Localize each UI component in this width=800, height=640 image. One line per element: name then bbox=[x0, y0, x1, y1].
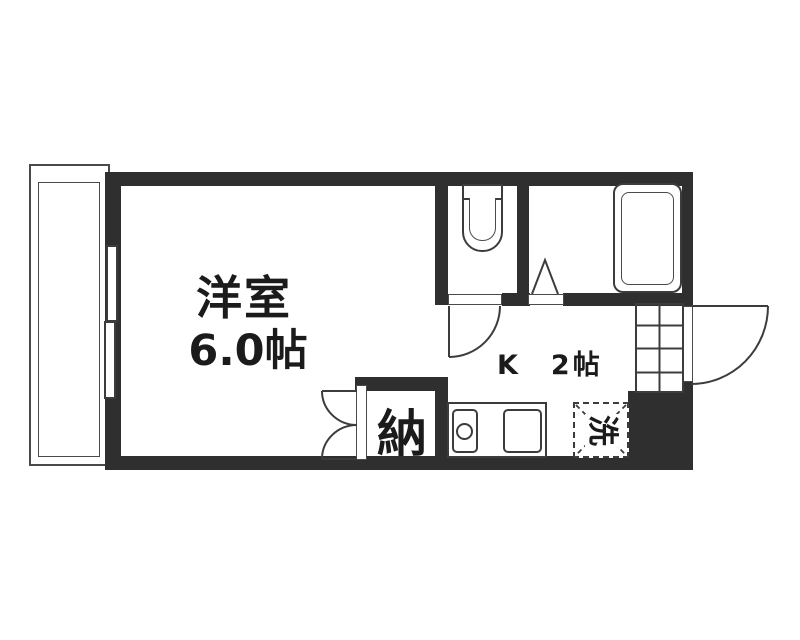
toilet-door-arc bbox=[449, 306, 500, 357]
closet-label: 納 bbox=[371, 394, 433, 466]
bath-folding-door-icon bbox=[532, 260, 558, 294]
entry-door-arc bbox=[691, 306, 768, 384]
shoe-cabinet-icon bbox=[636, 304, 683, 392]
closet-door-arc-bottom bbox=[322, 425, 357, 459]
plan-linework bbox=[0, 0, 800, 640]
western-room-size: 6.0帖 bbox=[150, 316, 346, 378]
closet-door-arc-top bbox=[322, 391, 357, 425]
laundry-label: 洗 bbox=[585, 414, 618, 447]
kitchen-label: K 2帖 bbox=[497, 343, 603, 382]
floor-plan: 洋室 6.0帖 K 2帖 納 洗 bbox=[0, 0, 800, 640]
